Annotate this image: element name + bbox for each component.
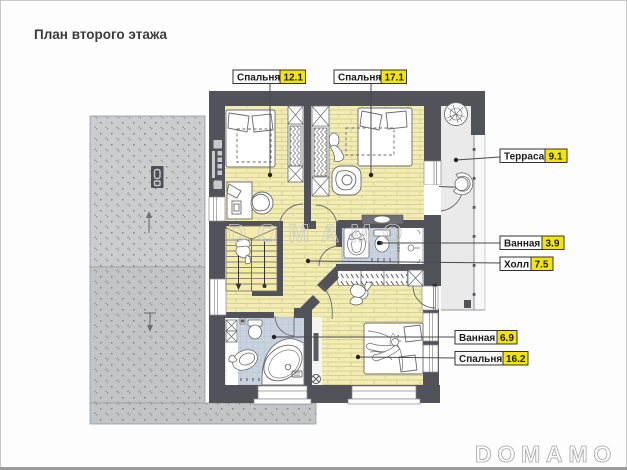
svg-text:DOMAMO: DOMAMO bbox=[228, 220, 414, 248]
svg-text:Терраса: Терраса bbox=[504, 152, 545, 163]
svg-text:Ванная: Ванная bbox=[504, 239, 540, 250]
svg-text:Ванная: Ванная bbox=[459, 333, 495, 344]
svg-text:7.5: 7.5 bbox=[535, 260, 549, 271]
svg-text:Спальня: Спальня bbox=[237, 73, 280, 84]
svg-text:12.1: 12.1 bbox=[284, 73, 304, 84]
svg-text:DOMAMO: DOMAMO bbox=[475, 441, 617, 467]
svg-text:Спальня: Спальня bbox=[459, 354, 502, 365]
svg-text:9.1: 9.1 bbox=[549, 152, 563, 163]
svg-text:Холл: Холл bbox=[504, 260, 529, 271]
svg-text:Спальня: Спальня bbox=[338, 73, 381, 84]
svg-text:6.9: 6.9 bbox=[500, 333, 514, 344]
svg-text:16.2: 16.2 bbox=[506, 354, 526, 365]
svg-text:17.1: 17.1 bbox=[385, 73, 405, 84]
svg-text:План второго этажа: План второго этажа bbox=[34, 27, 168, 42]
svg-text:3.9: 3.9 bbox=[546, 239, 560, 250]
